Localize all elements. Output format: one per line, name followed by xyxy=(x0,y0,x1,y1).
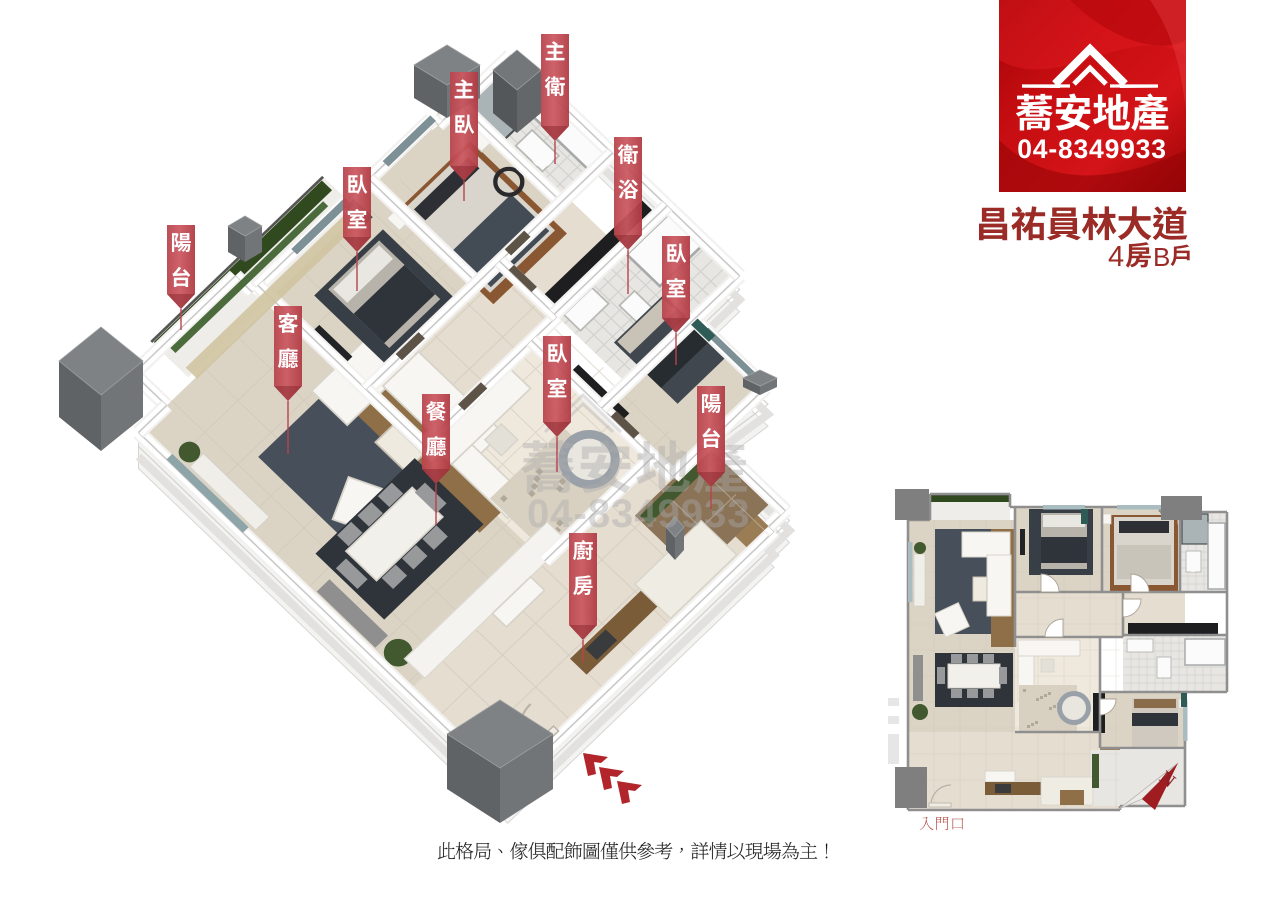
svg-text:4: 4 xyxy=(1108,241,1124,273)
svg-text:04-8349933: 04-8349933 xyxy=(1017,134,1166,164)
svg-text:B: B xyxy=(1153,242,1170,272)
svg-text:04-8349933: 04-8349933 xyxy=(527,492,751,536)
